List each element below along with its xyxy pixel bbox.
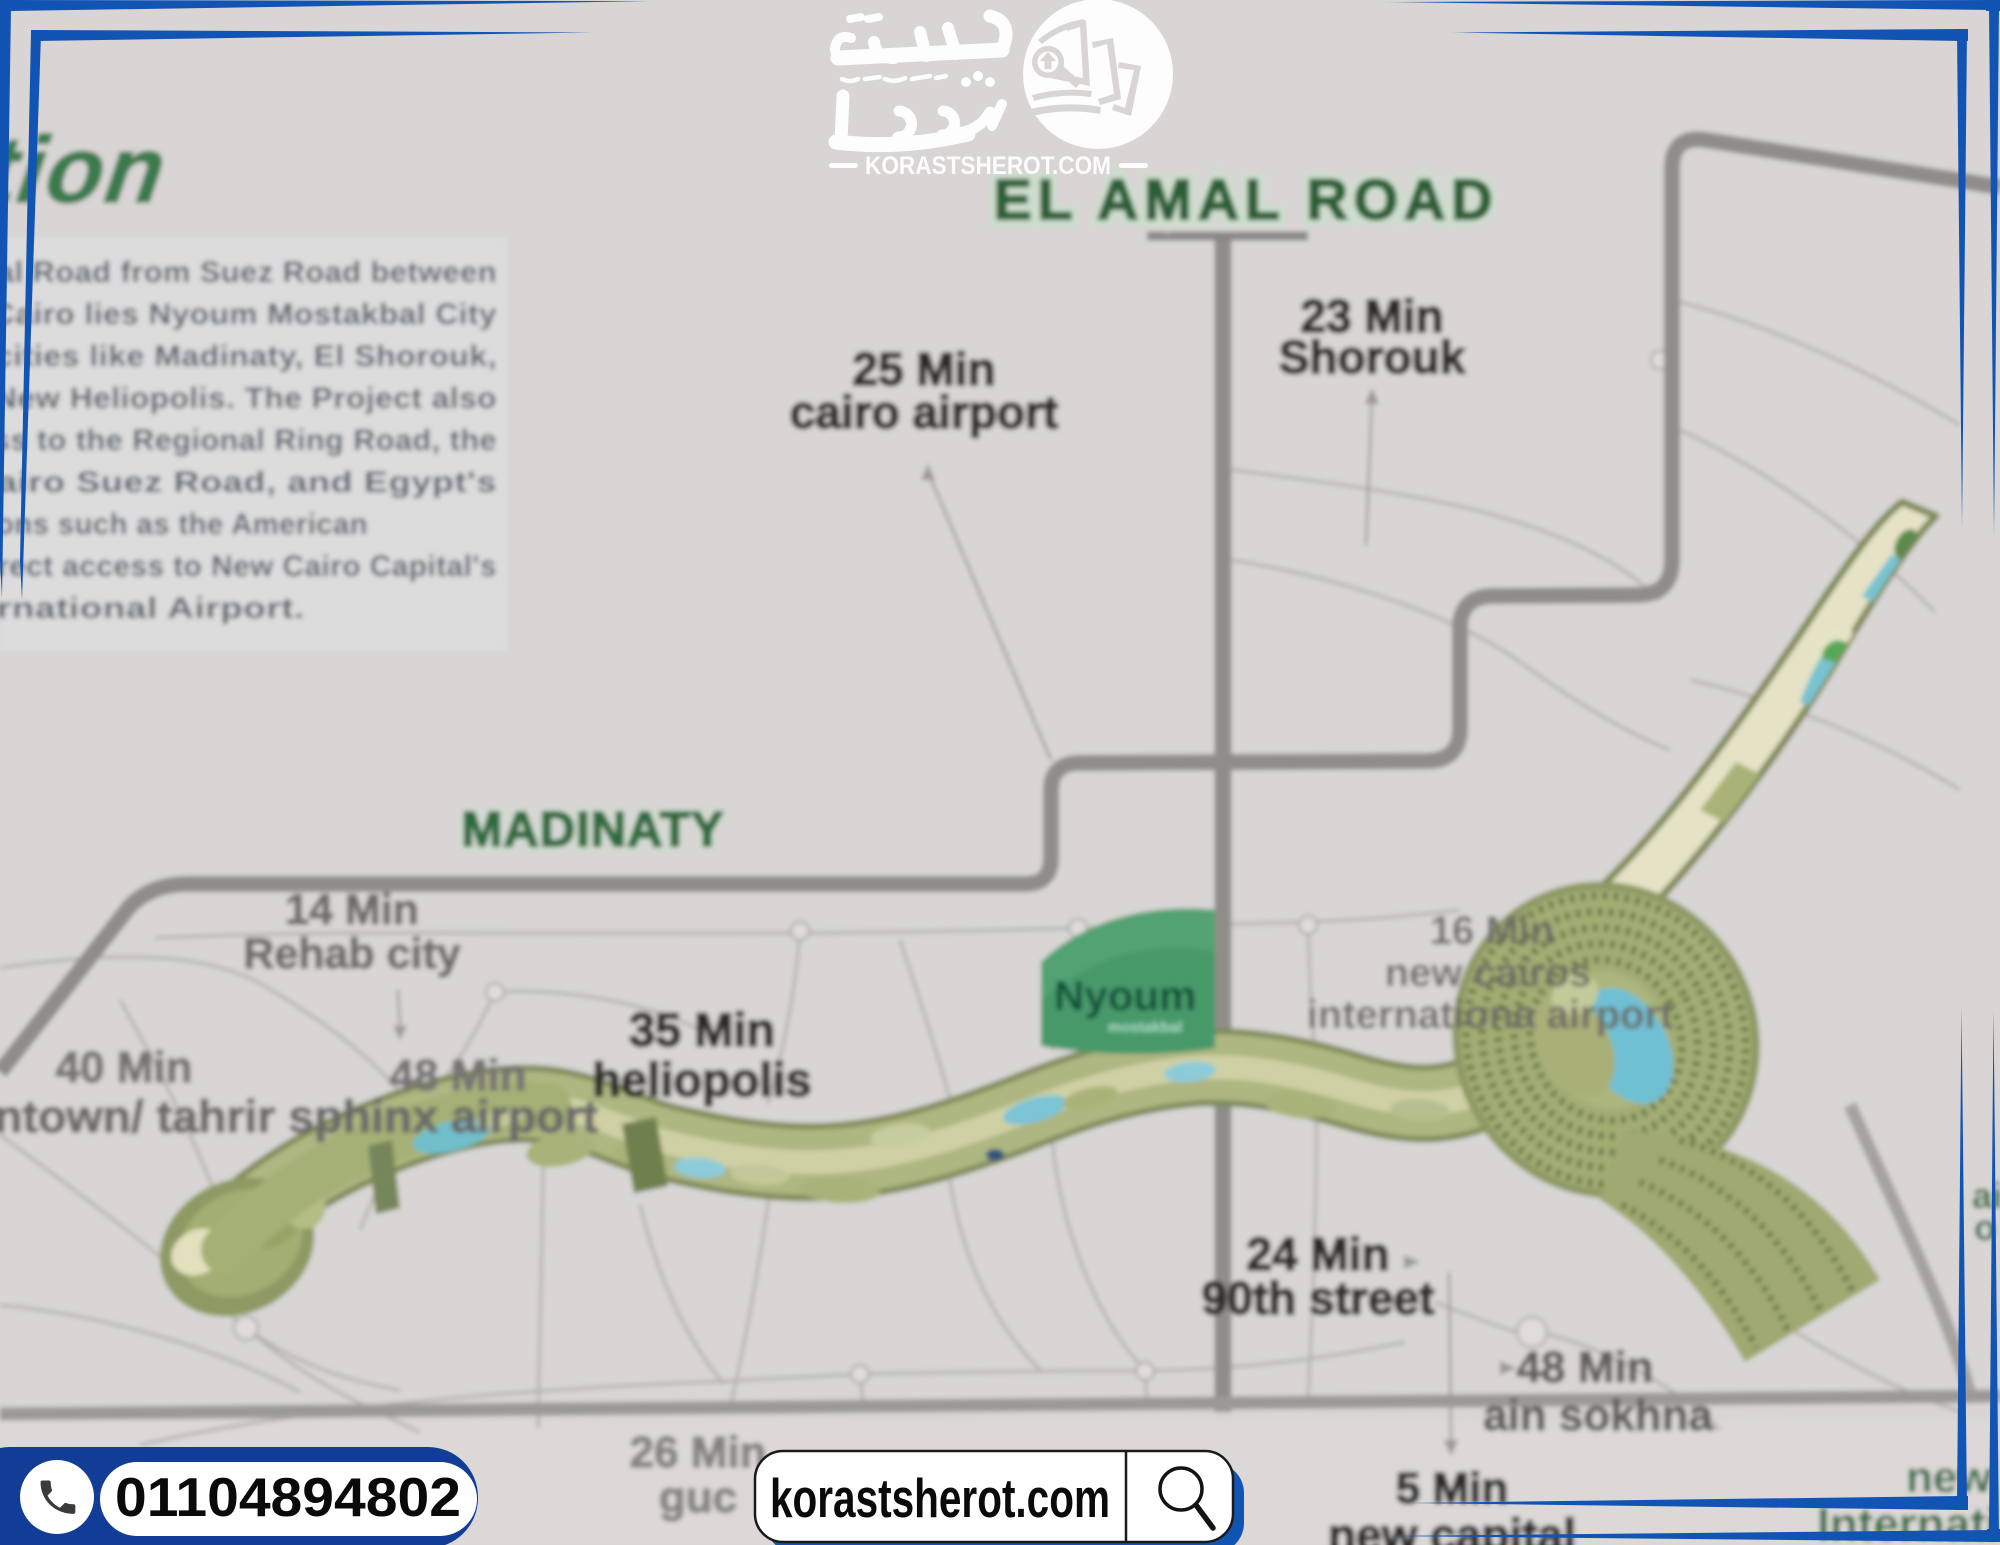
svg-text:internationa airport: internationa airport [1307,993,1674,1037]
svg-text:airo Suez Road, and Egypt's: airo Suez Road, and Egypt's [0,466,497,499]
svg-text:cairo airport: cairo airport [790,386,1058,438]
svg-text:mostakbal: mostakbal [1108,1019,1182,1036]
svg-text:rect access to New Cairo Capit: rect access to New Cairo Capital's [0,550,497,583]
svg-text:90th street: 90th street [1202,1272,1435,1324]
svg-text:16 Min: 16 Min [1430,909,1554,953]
svg-text:35 Min: 35 Min [629,1003,775,1056]
svg-text:heliopolis: heliopolis [592,1053,811,1106]
svg-text:tion: tion [0,117,174,222]
svg-text:rnational Airport.: rnational Airport. [0,592,305,625]
svg-text:5 Min: 5 Min [1396,1464,1508,1513]
svg-text:new: new [1906,1453,1992,1502]
svg-text:cities like Madinaty, El Shoro: cities like Madinaty, El Shorouk, [0,340,497,373]
svg-text:Nyoum: Nyoum [1054,972,1196,1019]
svg-text:new capital: new capital [1328,1509,1576,1545]
svg-text:26 Min: 26 Min [630,1428,767,1477]
svg-text:48 Min: 48 Min [1517,1343,1654,1392]
svg-text:KORASTSHEROT.COM: KORASTSHEROT.COM [865,152,1111,180]
svg-text:ons such as the American: ons such as the American [0,508,368,541]
svg-text:New Heliopolis. The Project al: New Heliopolis. The Project also [0,382,497,415]
svg-text:wntown/ tahrir sphinx airport: wntown/ tahrir sphinx airport [0,1091,598,1142]
svg-text:korastsherot.com: korastsherot.com [770,1467,1110,1529]
svg-text:MADINATY: MADINATY [462,803,725,857]
svg-text:new cairos: new cairos [1385,951,1592,995]
svg-text:Shorouk: Shorouk [1279,331,1466,383]
svg-text:40 Min: 40 Min [56,1043,193,1092]
svg-text:guc: guc [659,1473,737,1522]
svg-text:14 Min: 14 Min [285,886,419,934]
svg-text:Cairo lies Nyoum Mostakbal Cit: Cairo lies Nyoum Mostakbal City [0,298,497,331]
svg-text:Rehab city: Rehab city [243,930,461,978]
svg-text:01104894802: 01104894802 [115,1466,461,1528]
svg-text:ss to the Regional Ring Road,: ss to the Regional Ring Road, the [0,424,497,457]
svg-text:ain sokhna: ain sokhna [1483,1391,1713,1440]
svg-text:al Road from Suez Road between: al Road from Suez Road between [0,256,497,289]
